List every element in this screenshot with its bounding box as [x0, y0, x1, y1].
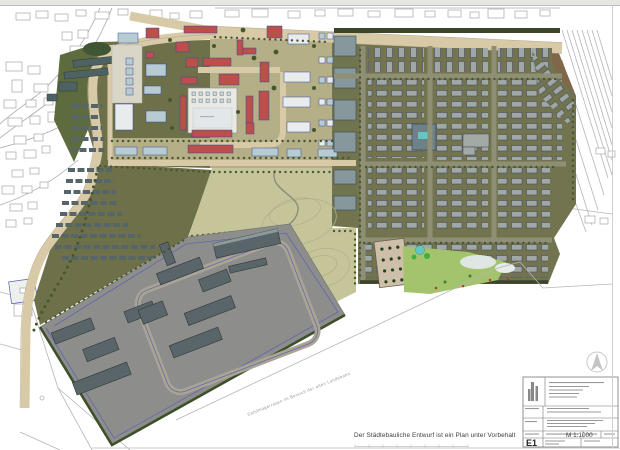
plan-sheet: Sandmagerrasen im Bereich der alten Land…: [0, 0, 620, 450]
site-plan-drawing: Sandmagerrasen im Bereich der alten Land…: [0, 0, 620, 450]
school-building: [463, 134, 489, 147]
pond: [416, 246, 425, 255]
caption-text: Der Städtebauliche Entwurf ist ein Plan …: [354, 432, 516, 439]
market-plaza: [188, 88, 237, 133]
east-district: [334, 28, 574, 282]
sheet-code: E1: [526, 438, 537, 448]
scale-label: M 1:1000: [566, 432, 593, 439]
north-hedge: [334, 28, 560, 33]
